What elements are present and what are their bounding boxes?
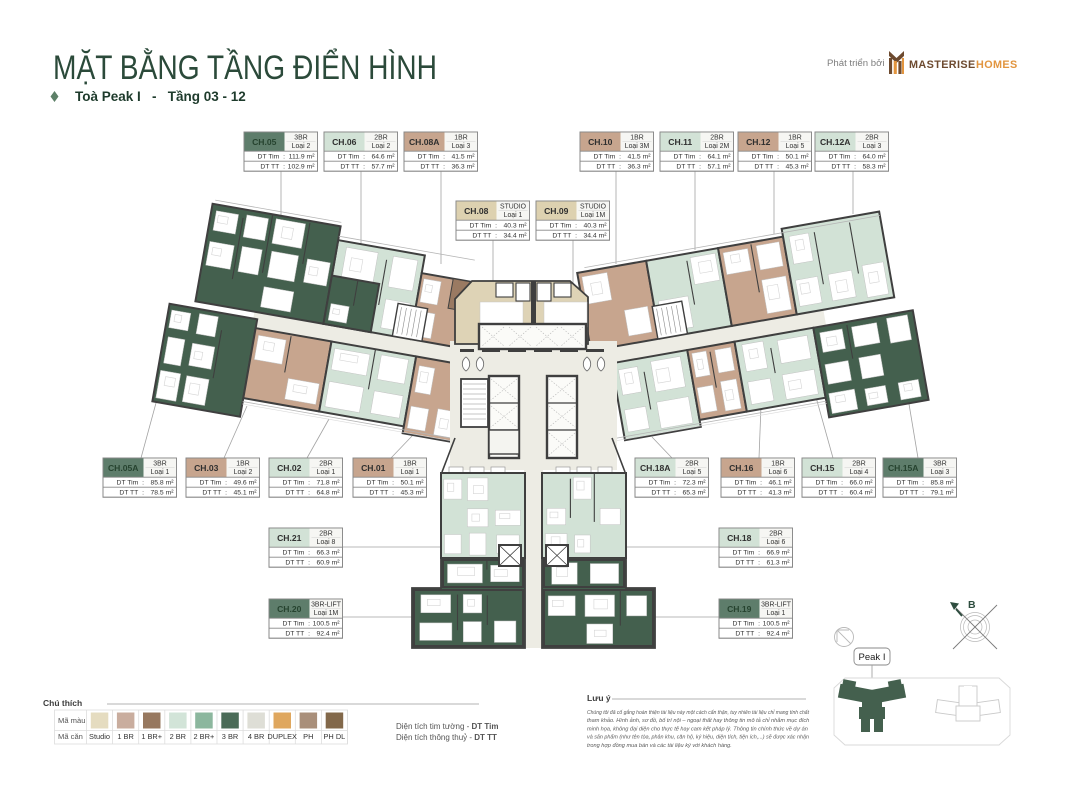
svg-text:CH.10: CH.10 — [588, 137, 613, 147]
svg-text:1BR: 1BR — [788, 134, 801, 141]
svg-text:CH.06: CH.06 — [332, 137, 357, 147]
svg-text:2BR: 2BR — [374, 134, 387, 141]
svg-text:Studio: Studio — [89, 732, 110, 741]
svg-text:3BR-LIFT: 3BR-LIFT — [311, 601, 342, 608]
svg-text:DT TT :: DT TT : — [899, 489, 924, 496]
svg-text:DT TT :: DT TT : — [754, 163, 779, 170]
svg-text:2BR: 2BR — [319, 460, 332, 467]
svg-text:DT TT :: DT TT : — [596, 163, 621, 170]
svg-text:1BR: 1BR — [454, 134, 467, 141]
svg-text:DT TT :: DT TT : — [676, 163, 701, 170]
svg-text:B: B — [968, 599, 976, 611]
svg-text:57.7 m²: 57.7 m² — [371, 163, 395, 170]
svg-text:DUPLEX: DUPLEX — [267, 732, 297, 741]
svg-text:85.8 m²: 85.8 m² — [150, 480, 174, 487]
svg-text:41.5 m²: 41.5 m² — [451, 154, 475, 161]
svg-text:MASTERISE: MASTERISE — [909, 59, 976, 71]
svg-text:CH.12A: CH.12A — [820, 137, 851, 147]
svg-text:79.1 m²: 79.1 m² — [930, 489, 954, 496]
svg-text:DT TT :: DT TT : — [552, 232, 577, 239]
svg-text:2BR: 2BR — [852, 460, 865, 467]
svg-text:100.5 m²: 100.5 m² — [763, 621, 791, 628]
svg-text:CH.05: CH.05 — [252, 137, 277, 147]
svg-text:64.6 m²: 64.6 m² — [371, 154, 395, 161]
svg-text:45.3 m²: 45.3 m² — [400, 489, 424, 496]
svg-text:3BR-LIFT: 3BR-LIFT — [761, 601, 792, 608]
svg-text:Mã căn: Mã căn — [58, 732, 83, 741]
svg-text:Loại 2: Loại 2 — [372, 143, 391, 150]
svg-text:3 BR: 3 BR — [222, 732, 238, 741]
svg-text:DT Tim :: DT Tim : — [649, 480, 677, 487]
svg-text:DT Tim :: DT Tim : — [367, 480, 395, 487]
svg-text:3BR: 3BR — [153, 460, 166, 467]
svg-text:64.1 m²: 64.1 m² — [707, 154, 731, 161]
svg-text:1BR: 1BR — [771, 460, 784, 467]
svg-text:DT Tim :: DT Tim : — [829, 154, 857, 161]
svg-text:50.1 m²: 50.1 m² — [785, 154, 809, 161]
svg-text:minh họa, không đại diện cho t: minh họa, không đại diện cho thực tế hay… — [587, 725, 808, 732]
svg-text:46.1 m²: 46.1 m² — [768, 480, 792, 487]
svg-text:DT Tim :: DT Tim : — [897, 480, 925, 487]
svg-text:CH.09: CH.09 — [544, 206, 569, 216]
svg-text:45.1 m²: 45.1 m² — [233, 489, 257, 496]
svg-text:DT Tim :: DT Tim : — [283, 621, 311, 628]
svg-text:Loại 8: Loại 8 — [317, 539, 336, 546]
svg-text:DT TT :: DT TT : — [119, 489, 144, 496]
svg-text:CH.18: CH.18 — [727, 533, 752, 543]
svg-text:CH.18A: CH.18A — [640, 463, 671, 473]
svg-text:111.9 m²: 111.9 m² — [289, 154, 316, 161]
svg-text:tham khảo. Hình ảnh, sơ đồ, bố: tham khảo. Hình ảnh, sơ đồ, bố trí nội –… — [587, 717, 809, 724]
svg-text:PH DL: PH DL — [324, 732, 346, 741]
svg-text:92.4 m²: 92.4 m² — [316, 630, 340, 637]
svg-text:và sản phẩm (như tên tòa, phân: và sản phẩm (như tên tòa, phân khu, căn … — [587, 734, 809, 741]
svg-text:Chúng tôi đã cố gắng hoàn thiệ: Chúng tôi đã cố gắng hoàn thiện tài liệu… — [587, 709, 809, 716]
svg-text:Loại 3: Loại 3 — [452, 143, 471, 150]
svg-text:DT Tim :: DT Tim : — [674, 154, 702, 161]
svg-text:1 BR+: 1 BR+ — [141, 732, 162, 741]
svg-text:CH.08A: CH.08A — [409, 137, 440, 147]
svg-text:Peak I: Peak I — [859, 652, 886, 663]
svg-text:2BR: 2BR — [865, 134, 878, 141]
svg-text:2BR: 2BR — [319, 530, 332, 537]
svg-text:Loại 5: Loại 5 — [786, 143, 805, 150]
svg-text:Loại 2: Loại 2 — [234, 469, 253, 476]
svg-text:DT Tim :: DT Tim : — [418, 154, 446, 161]
svg-text:DT Tim :: DT Tim : — [733, 621, 761, 628]
svg-text:Mã màu: Mã màu — [58, 716, 85, 725]
svg-text:Loại 6: Loại 6 — [769, 469, 788, 476]
svg-text:MẶT BẰNG TẦNG ĐIỂN HÌNH: MẶT BẰNG TẦNG ĐIỂN HÌNH — [53, 49, 437, 87]
svg-text:DT TT :: DT TT : — [472, 232, 497, 239]
svg-text:40.3 m²: 40.3 m² — [583, 223, 607, 230]
svg-text:2 BR: 2 BR — [170, 732, 186, 741]
svg-text:58.3 m²: 58.3 m² — [862, 163, 886, 170]
svg-text:CH.08: CH.08 — [464, 206, 489, 216]
svg-text:DT Tim :: DT Tim : — [752, 154, 780, 161]
svg-text:CH.15A: CH.15A — [888, 463, 919, 473]
svg-text:40.3 m²: 40.3 m² — [503, 223, 527, 230]
svg-text:Diện tích tim tường - DT Tim: Diện tích tim tường - DT Tim — [396, 722, 498, 731]
svg-text:DT Tim :: DT Tim : — [735, 480, 763, 487]
svg-text:CH.19: CH.19 — [727, 604, 752, 614]
svg-text:DT TT :: DT TT : — [285, 559, 310, 566]
svg-text:1 BR: 1 BR — [117, 732, 133, 741]
svg-text:Loại 1: Loại 1 — [504, 212, 523, 219]
svg-text:Loại 2: Loại 2 — [292, 143, 311, 150]
svg-text:DT Tim :: DT Tim : — [594, 154, 622, 161]
svg-text:DT TT :: DT TT : — [735, 559, 760, 566]
svg-text:Loại 2M: Loại 2M — [705, 143, 730, 150]
svg-text:3BR: 3BR — [933, 460, 946, 467]
svg-text:DT TT :: DT TT : — [340, 163, 365, 170]
svg-text:DT TT :: DT TT : — [737, 489, 762, 496]
svg-text:Loại 1M: Loại 1M — [314, 610, 339, 617]
svg-text:DT TT :: DT TT : — [651, 489, 676, 496]
svg-text:78.5 m²: 78.5 m² — [150, 489, 174, 496]
svg-text:Loại 3M: Loại 3M — [625, 143, 650, 150]
svg-text:Loại 1: Loại 1 — [401, 469, 420, 476]
svg-text:HOMES: HOMES — [976, 59, 1018, 71]
svg-text:Loại 1M: Loại 1M — [581, 212, 606, 219]
svg-text:trong hợp đồng mua bán và các: trong hợp đồng mua bán và các tài liệu k… — [587, 743, 732, 749]
svg-text:1BR: 1BR — [236, 460, 249, 467]
svg-text:Chú thích: Chú thích — [43, 698, 82, 708]
svg-text:Loại 3: Loại 3 — [863, 143, 882, 150]
svg-text:DT Tim :: DT Tim : — [258, 154, 286, 161]
svg-text:DT TT :: DT TT : — [285, 489, 310, 496]
svg-text:64.0 m²: 64.0 m² — [862, 154, 886, 161]
svg-text:CH.16: CH.16 — [729, 463, 754, 473]
svg-text:1BR: 1BR — [403, 460, 416, 467]
svg-text:Loại 1: Loại 1 — [151, 469, 170, 476]
svg-text:2BR: 2BR — [710, 134, 723, 141]
svg-text:2 BR+: 2 BR+ — [194, 732, 215, 741]
svg-text:4 BR: 4 BR — [248, 732, 264, 741]
svg-text:2BR: 2BR — [769, 530, 782, 537]
svg-text:PH: PH — [303, 732, 313, 741]
svg-text:57.1 m²: 57.1 m² — [707, 163, 731, 170]
svg-text:61.3 m²: 61.3 m² — [766, 559, 790, 566]
svg-text:DT TT :: DT TT : — [818, 489, 843, 496]
svg-text:Toà Peak I - Tầng 03 - 12: Toà Peak I - Tầng 03 - 12 — [75, 89, 246, 104]
svg-text:41.5 m²: 41.5 m² — [627, 154, 651, 161]
svg-text:Loại 6: Loại 6 — [767, 539, 786, 546]
svg-text:DT Tim :: DT Tim : — [200, 480, 228, 487]
svg-text:36.3 m²: 36.3 m² — [451, 163, 475, 170]
svg-text:CH.12: CH.12 — [746, 137, 771, 147]
svg-text:DT TT :: DT TT : — [735, 630, 760, 637]
svg-text:Phát triển bởi: Phát triển bởi — [827, 58, 885, 69]
svg-text:DT Tim :: DT Tim : — [338, 154, 366, 161]
svg-text:DT Tim :: DT Tim : — [283, 480, 311, 487]
svg-text:STUDIO: STUDIO — [580, 203, 607, 210]
svg-text:71.8 m²: 71.8 m² — [316, 480, 340, 487]
svg-text:60.9 m²: 60.9 m² — [316, 559, 340, 566]
svg-text:CH.20: CH.20 — [277, 604, 302, 614]
svg-text:DT Tim :: DT Tim : — [283, 550, 311, 557]
svg-text:DT Tim :: DT Tim : — [117, 480, 145, 487]
svg-text:Loại 1: Loại 1 — [317, 469, 336, 476]
svg-text:DT TT :: DT TT : — [260, 163, 285, 170]
svg-text:Loại 4: Loại 4 — [850, 469, 869, 476]
svg-text:Loại 1: Loại 1 — [767, 610, 786, 617]
svg-text:DT TT :: DT TT : — [420, 163, 445, 170]
svg-text:64.8 m²: 64.8 m² — [316, 489, 340, 496]
svg-text:DT Tim :: DT Tim : — [816, 480, 844, 487]
svg-text:102.9 m²: 102.9 m² — [288, 163, 316, 170]
svg-text:DT TT :: DT TT : — [831, 163, 856, 170]
svg-text:CH.01: CH.01 — [361, 463, 386, 473]
svg-text:50.1 m²: 50.1 m² — [400, 480, 424, 487]
svg-text:34.4 m²: 34.4 m² — [583, 232, 607, 239]
svg-text:Loại 3: Loại 3 — [931, 469, 950, 476]
svg-text:36.3 m²: 36.3 m² — [627, 163, 651, 170]
svg-text:CH.02: CH.02 — [277, 463, 302, 473]
svg-text:3BR: 3BR — [294, 134, 307, 141]
svg-text:STUDIO: STUDIO — [500, 203, 527, 210]
svg-text:Lưu ý: Lưu ý — [587, 693, 611, 703]
svg-text:60.4 m²: 60.4 m² — [849, 489, 873, 496]
svg-text:DT Tim :: DT Tim : — [550, 223, 578, 230]
svg-text:DT TT :: DT TT : — [285, 630, 310, 637]
svg-text:65.3 m²: 65.3 m² — [682, 489, 706, 496]
svg-text:DT Tim :: DT Tim : — [470, 223, 498, 230]
svg-text:DT TT :: DT TT : — [202, 489, 227, 496]
svg-text:66.0 m²: 66.0 m² — [849, 480, 873, 487]
svg-text:41.3 m²: 41.3 m² — [768, 489, 792, 496]
svg-text:CH.05A: CH.05A — [108, 463, 139, 473]
svg-text:100.5 m²: 100.5 m² — [313, 621, 341, 628]
svg-text:DT Tim :: DT Tim : — [733, 550, 761, 557]
svg-text:72.3 m²: 72.3 m² — [682, 480, 706, 487]
svg-text:66.3 m²: 66.3 m² — [316, 550, 340, 557]
svg-text:92.4 m²: 92.4 m² — [766, 630, 790, 637]
svg-text:CH.15: CH.15 — [810, 463, 835, 473]
svg-text:CH.21: CH.21 — [277, 533, 302, 543]
svg-text:85.8 m²: 85.8 m² — [930, 480, 954, 487]
svg-text:Diện tích thông thuỷ - DT TT: Diện tích thông thuỷ - DT TT — [396, 733, 497, 742]
svg-text:2BR: 2BR — [685, 460, 698, 467]
svg-text:DT TT :: DT TT : — [369, 489, 394, 496]
svg-text:34.4 m²: 34.4 m² — [503, 232, 527, 239]
svg-text:CH.11: CH.11 — [668, 137, 692, 147]
svg-text:1BR: 1BR — [630, 134, 643, 141]
svg-text:45.3 m²: 45.3 m² — [785, 163, 809, 170]
svg-text:66.9 m²: 66.9 m² — [766, 550, 790, 557]
svg-text:49.6 m²: 49.6 m² — [233, 480, 257, 487]
svg-text:Loại 5: Loại 5 — [683, 469, 702, 476]
svg-text:CH.03: CH.03 — [194, 463, 219, 473]
